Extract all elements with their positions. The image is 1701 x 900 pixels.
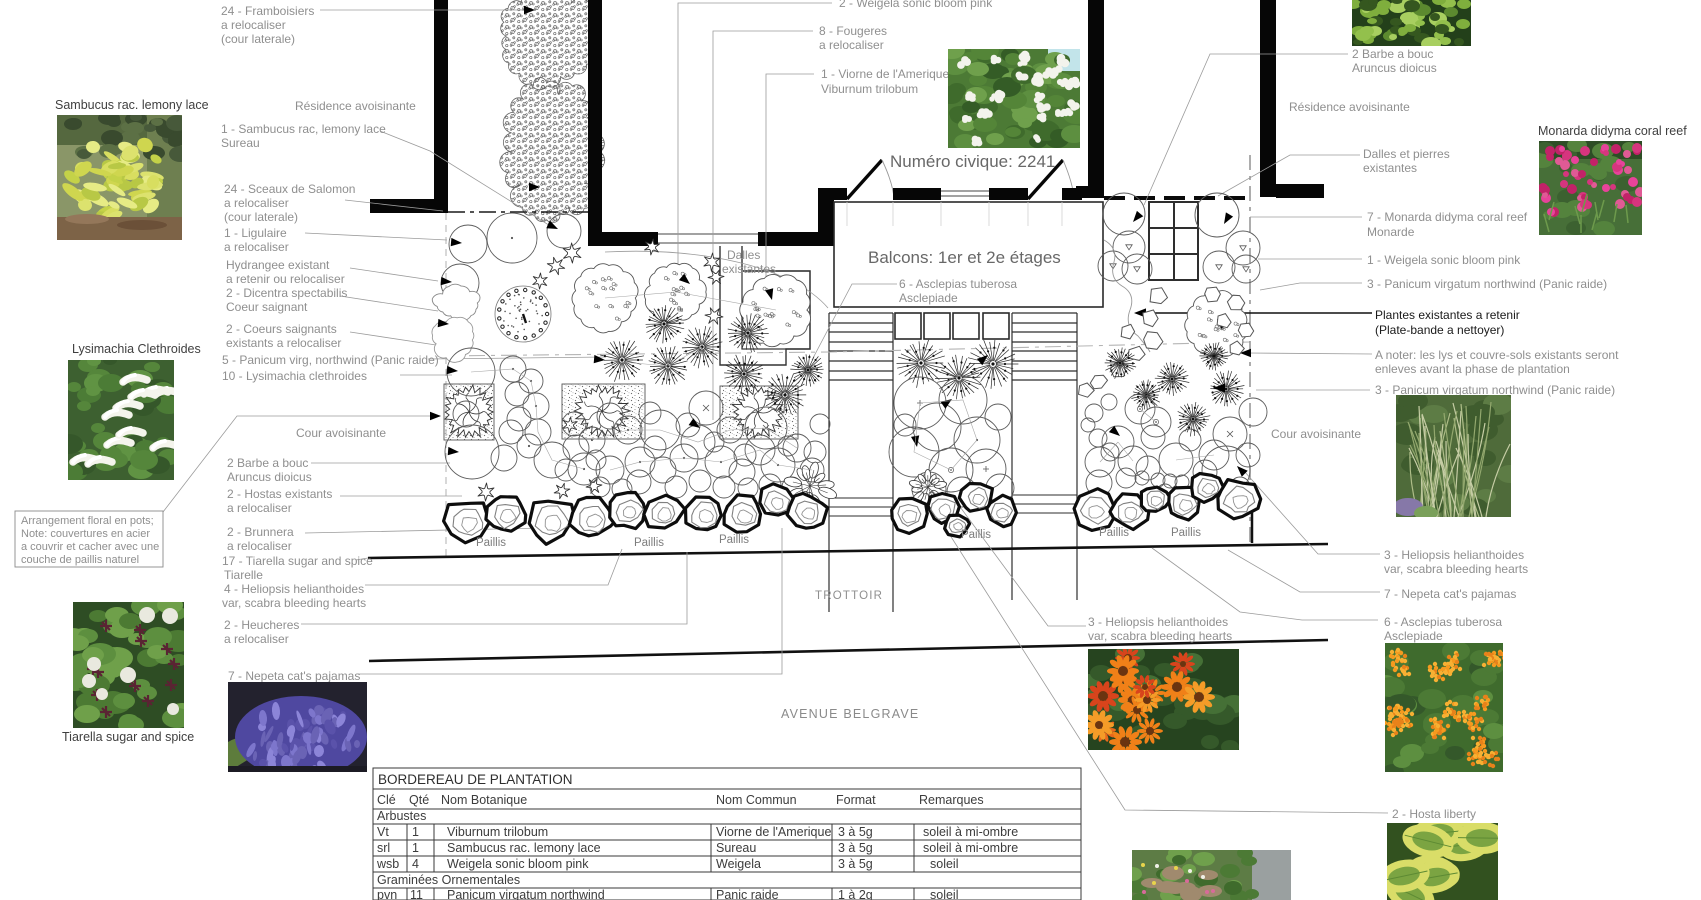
svg-text:Sambucus rac. lemony lace: Sambucus rac. lemony lace — [447, 841, 601, 855]
svg-text:10 - Lysimachia clethroides: 10 - Lysimachia clethroides — [222, 369, 367, 383]
svg-text:2 - Dicentra spectabilis: 2 - Dicentra spectabilis — [226, 286, 347, 300]
svg-text:7 - Nepeta cat's pajamas: 7 - Nepeta cat's pajamas — [228, 669, 360, 683]
svg-text:Dalles: Dalles — [727, 248, 760, 262]
svg-text:existantes: existantes — [1363, 161, 1417, 175]
svg-text:Hydrangee existant: Hydrangee existant — [226, 258, 330, 272]
svg-text:a relocaliser: a relocaliser — [224, 240, 289, 254]
svg-text:Panicum virgatum northwind: Panicum virgatum northwind — [447, 888, 605, 900]
svg-text:Weigela sonic bloom pink: Weigela sonic bloom pink — [447, 857, 589, 871]
svg-text:Nom Botanique: Nom Botanique — [441, 793, 527, 807]
svg-text:Cour avoisinante: Cour avoisinante — [296, 426, 386, 440]
svg-text:soleil: soleil — [930, 857, 959, 871]
svg-text:var, scabra bleeding hearts: var, scabra bleeding hearts — [1384, 562, 1528, 576]
svg-text:Clé: Clé — [377, 793, 396, 807]
svg-text:(Plate-bande a nettoyer): (Plate-bande a nettoyer) — [1375, 323, 1504, 337]
svg-text:a relocaliser: a relocaliser — [819, 38, 884, 52]
svg-text:Weigela: Weigela — [716, 857, 761, 871]
svg-text:7 - Nepeta cat's pajamas: 7 - Nepeta cat's pajamas — [1384, 587, 1516, 601]
svg-text:Aruncus dioicus: Aruncus dioicus — [1352, 61, 1437, 75]
svg-text:2 - Brunnera: 2 - Brunnera — [227, 525, 294, 539]
svg-text:soleil à mi-ombre: soleil à mi-ombre — [923, 841, 1018, 855]
svg-text:2 - Hosta liberty: 2 - Hosta liberty — [1392, 807, 1476, 821]
svg-text:8 - Fougeres: 8 - Fougeres — [819, 24, 887, 38]
svg-text:Nom Commun: Nom Commun — [716, 793, 797, 807]
svg-text:var, scabra bleeding hearts: var, scabra bleeding hearts — [222, 596, 366, 610]
svg-text:4 - Heliopsis helianthoides: 4 - Heliopsis helianthoides — [224, 582, 364, 596]
svg-text:Monarde: Monarde — [1367, 225, 1415, 239]
svg-text:Vt: Vt — [377, 825, 389, 839]
svg-text:1: 1 — [412, 841, 419, 855]
svg-text:Arrangement floral en pots;: Arrangement floral en pots; — [21, 515, 154, 527]
svg-text:existantes: existantes — [722, 262, 776, 276]
svg-text:Asclepiade: Asclepiade — [899, 291, 958, 305]
svg-text:srl: srl — [377, 841, 390, 855]
svg-text:Résidence avoisinante: Résidence avoisinante — [1289, 100, 1410, 114]
svg-text:a relocaliser: a relocaliser — [227, 539, 292, 553]
svg-text:Paillis: Paillis — [961, 529, 991, 541]
svg-text:soleil: soleil — [930, 888, 959, 900]
svg-text:Format: Format — [836, 793, 876, 807]
svg-text:Viorne de l'Amerique: Viorne de l'Amerique — [716, 825, 831, 839]
svg-text:(cour laterale): (cour laterale) — [221, 32, 295, 46]
svg-text:1 - Ligulaire: 1 - Ligulaire — [224, 226, 287, 240]
svg-text:Viburnum trilobum: Viburnum trilobum — [821, 82, 918, 96]
svg-text:wsb: wsb — [376, 857, 399, 871]
svg-text:1 - Weigela sonic bloom pink: 1 - Weigela sonic bloom pink — [1367, 253, 1521, 267]
svg-text:3 - Heliopsis helianthoides: 3 - Heliopsis helianthoides — [1088, 615, 1228, 629]
svg-text:Tiarelle: Tiarelle — [224, 568, 263, 582]
svg-text:A noter: les lys et couvre-sol: A noter: les lys et couvre-sols existant… — [1375, 348, 1619, 362]
svg-text:Panic raide: Panic raide — [716, 888, 779, 900]
svg-text:3 à 5g: 3 à 5g — [838, 825, 873, 839]
svg-text:2 - Heucheres: 2 - Heucheres — [224, 618, 299, 632]
svg-text:1 - Viorne de l'Amerique: 1 - Viorne de l'Amerique — [821, 67, 949, 81]
svg-text:AVENUE BELGRAVE: AVENUE BELGRAVE — [781, 707, 919, 721]
svg-text:Paillis: Paillis — [476, 537, 506, 549]
svg-text:1: 1 — [412, 825, 419, 839]
svg-text:Tiarella sugar and spice: Tiarella sugar and spice — [62, 730, 194, 744]
svg-text:3 - Panicum virgatum northwind: 3 - Panicum virgatum northwind (Panic ra… — [1375, 383, 1615, 397]
svg-text:couche de paillis naturel: couche de paillis naturel — [21, 554, 139, 566]
svg-text:Asclepiade: Asclepiade — [1384, 629, 1443, 643]
svg-text:2 Barbe a bouc: 2 Barbe a bouc — [1352, 47, 1433, 61]
svg-text:Paillis: Paillis — [1171, 527, 1201, 539]
svg-text:Monarda didyma coral reef: Monarda didyma coral reef — [1538, 124, 1687, 138]
svg-text:Sureau: Sureau — [221, 136, 260, 150]
svg-text:17 - Tiarella sugar and spice: 17 - Tiarella sugar and spice — [222, 554, 373, 568]
svg-text:Aruncus dioicus: Aruncus dioicus — [227, 470, 312, 484]
svg-text:existants a relocaliser: existants a relocaliser — [226, 336, 341, 350]
svg-text:5 - Panicum virg, northwind (P: 5 - Panicum virg, northwind (Panic raide… — [222, 353, 439, 367]
svg-text:Graminées Ornementales: Graminées Ornementales — [377, 873, 520, 887]
svg-text:Arbustes: Arbustes — [377, 809, 426, 823]
svg-text:24 - Framboisiers: 24 - Framboisiers — [221, 4, 314, 18]
svg-text:2 - Hostas existants: 2 - Hostas existants — [227, 487, 332, 501]
svg-text:a relocaliser: a relocaliser — [221, 18, 286, 32]
svg-text:Balcons: 1er et 2e étages: Balcons: 1er et 2e étages — [868, 248, 1061, 267]
svg-text:2 Barbe a bouc: 2 Barbe a bouc — [227, 456, 308, 470]
svg-text:2 - Coeurs saignants: 2 - Coeurs saignants — [226, 322, 337, 336]
svg-text:Note: couvertures en acier: Note: couvertures en acier — [21, 528, 150, 540]
svg-text:Lysimachia Clethroides: Lysimachia Clethroides — [72, 342, 201, 356]
svg-text:7 - Monarda didyma coral reef: 7 - Monarda didyma coral reef — [1367, 210, 1528, 224]
svg-text:1 - Sambucus rac, lemony lace: 1 - Sambucus rac, lemony lace — [221, 122, 386, 136]
svg-text:Qté: Qté — [409, 793, 429, 807]
svg-text:a relocaliser: a relocaliser — [224, 632, 289, 646]
svg-text:Sureau: Sureau — [716, 841, 756, 855]
svg-text:enleves avant la phase de plan: enleves avant la phase de plantation — [1375, 362, 1570, 376]
svg-text:(cour laterale): (cour laterale) — [224, 210, 298, 224]
svg-text:Cour avoisinante: Cour avoisinante — [1271, 427, 1361, 441]
svg-text:Résidence avoisinante: Résidence avoisinante — [295, 99, 416, 113]
svg-text:Remarques: Remarques — [919, 793, 984, 807]
svg-text:3 - Panicum virgatum northwind: 3 - Panicum virgatum northwind (Panic ra… — [1367, 277, 1607, 291]
svg-text:2 - Weigela sonic bloom pink: 2 - Weigela sonic bloom pink — [839, 0, 993, 10]
svg-text:3 - Heliopsis helianthoides: 3 - Heliopsis helianthoides — [1384, 548, 1524, 562]
svg-text:TROTTOIR: TROTTOIR — [815, 590, 883, 602]
svg-text:1 à 2g: 1 à 2g — [838, 888, 873, 900]
svg-text:Paillis: Paillis — [1099, 527, 1129, 539]
svg-text:Coeur saignant: Coeur saignant — [226, 300, 308, 314]
svg-text:BORDEREAU DE PLANTATION: BORDEREAU DE PLANTATION — [378, 772, 573, 787]
svg-text:a relocaliser: a relocaliser — [224, 196, 289, 210]
svg-text:6 - Asclepias tuberosa: 6 - Asclepias tuberosa — [1384, 615, 1502, 629]
svg-text:3 à 5g: 3 à 5g — [838, 841, 873, 855]
svg-text:Paillis: Paillis — [634, 537, 664, 549]
svg-text:pvn: pvn — [377, 888, 397, 900]
svg-text:Dalles et pierres: Dalles et pierres — [1363, 147, 1450, 161]
svg-text:a retenir ou relocaliser: a retenir ou relocaliser — [226, 272, 345, 286]
svg-text:24 - Sceaux de Salomon: 24 - Sceaux de Salomon — [224, 182, 355, 196]
svg-text:Numéro civique: 2241: Numéro civique: 2241 — [890, 152, 1055, 171]
svg-text:Viburnum trilobum: Viburnum trilobum — [447, 825, 548, 839]
svg-text:soleil à mi-ombre: soleil à mi-ombre — [923, 825, 1018, 839]
svg-text:4: 4 — [412, 857, 419, 871]
svg-text:Plantes existantes a retenir: Plantes existantes a retenir — [1375, 308, 1520, 322]
svg-text:var, scabra bleeding hearts: var, scabra bleeding hearts — [1088, 629, 1232, 643]
svg-text:a relocaliser: a relocaliser — [227, 501, 292, 515]
svg-text:6 - Asclepias tuberosa: 6 - Asclepias tuberosa — [899, 277, 1017, 291]
svg-text:a couvrir et cacher avec une: a couvrir et cacher avec une — [21, 541, 159, 553]
svg-text:Sambucus rac. lemony lace: Sambucus rac. lemony lace — [55, 98, 209, 112]
svg-text:3 à 5g: 3 à 5g — [838, 857, 873, 871]
svg-text:11: 11 — [410, 888, 423, 900]
svg-text:Paillis: Paillis — [719, 534, 749, 546]
